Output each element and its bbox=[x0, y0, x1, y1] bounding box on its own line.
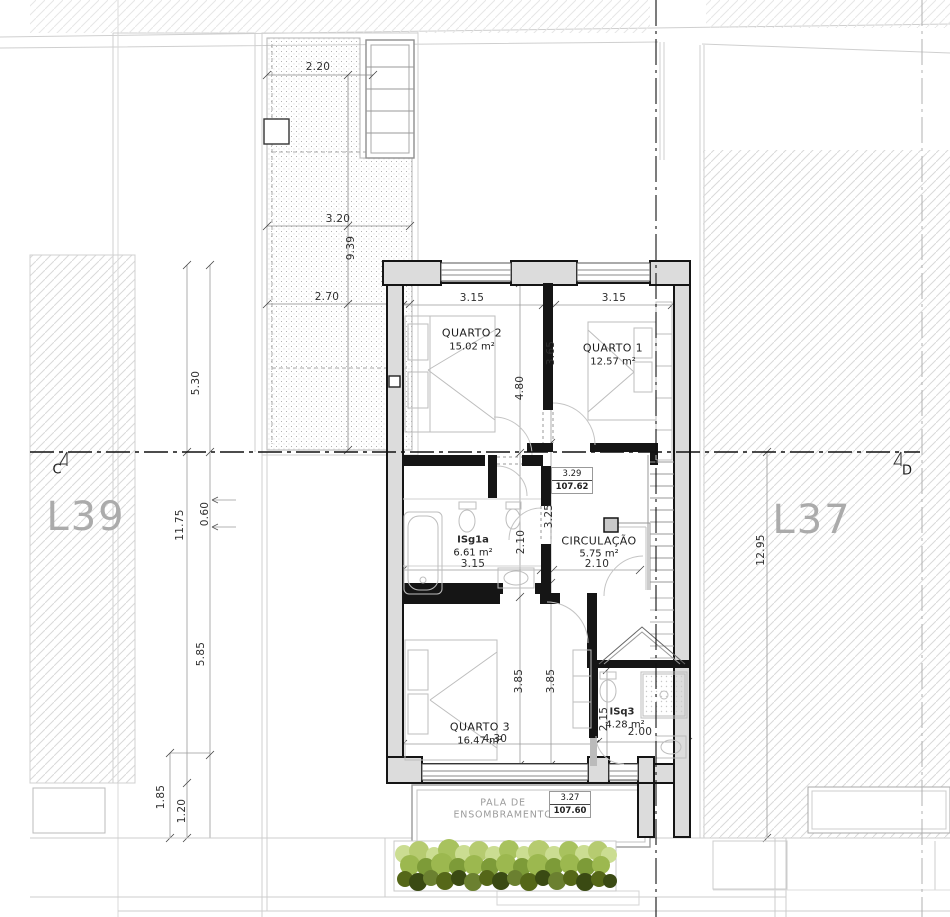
room-name-isq3: ISq3 bbox=[609, 707, 634, 718]
dim-site-lower-width: 2.70 bbox=[315, 291, 340, 303]
floor-plan-linework bbox=[0, 0, 950, 917]
dim-bath3-width: 2.00 bbox=[628, 726, 653, 738]
level-elevation-upper: 107.62 bbox=[552, 480, 592, 493]
dim-q1-depth: 3.65 bbox=[545, 341, 557, 366]
hatch-top-right bbox=[706, 0, 950, 28]
dim-right-depth: 12.95 bbox=[755, 534, 767, 566]
dim-bottom-left-a: 1.85 bbox=[155, 785, 167, 810]
canopy-label-line1: PALA DE bbox=[480, 798, 526, 809]
dim-left-total-depth: 11.75 bbox=[174, 509, 186, 541]
lot-label-left: L39 bbox=[46, 494, 125, 540]
room-name-quarto1: QUARTO 1 bbox=[583, 342, 643, 355]
dim-q3-width: 4.30 bbox=[483, 733, 508, 745]
hatch-lot-right bbox=[703, 150, 950, 838]
room-area-quarto2: 15.02 m² bbox=[449, 342, 495, 353]
staircase bbox=[599, 455, 685, 664]
lot-label-right: L37 bbox=[772, 497, 851, 543]
section-marker-c: C bbox=[52, 463, 61, 478]
dim-circ-width: 2.10 bbox=[585, 558, 610, 570]
dim-q2-depth: 4.80 bbox=[514, 376, 526, 401]
dim-courtyard-depth: 9.39 bbox=[345, 236, 357, 261]
dim-q1-width: 3.15 bbox=[602, 292, 627, 304]
room-area-quarto1: 12.57 m² bbox=[590, 357, 636, 368]
dim-bath3-depth: 2.15 bbox=[598, 707, 610, 732]
dim-bath1-depth: 2.10 bbox=[515, 530, 527, 555]
dim-hall-depth: 3.25 bbox=[543, 504, 555, 529]
level-elevation-canopy: 107.60 bbox=[550, 804, 590, 817]
dim-site-mid-width: 3.20 bbox=[326, 213, 351, 225]
vegetation-hedge bbox=[394, 839, 617, 891]
dim-q2-width: 3.15 bbox=[460, 292, 485, 304]
sliding-door-leaf bbox=[590, 738, 597, 766]
hatch-top-left bbox=[30, 0, 650, 33]
level-marker-canopy: 3.27 107.60 bbox=[549, 791, 591, 818]
level-marker-upper: 3.29 107.62 bbox=[551, 467, 593, 494]
room-name-isg1a: ISg1a bbox=[457, 535, 489, 546]
floor-plan-canvas: L39 L37 C D QUARTO 2 15.02 m² QUARTO 1 1… bbox=[0, 0, 950, 917]
dim-left-lower-depth: 5.85 bbox=[195, 642, 207, 667]
room-name-quarto2: QUARTO 2 bbox=[442, 327, 502, 340]
dim-q3-depth-a: 3.85 bbox=[513, 669, 525, 694]
room-name-quarto3: QUARTO 3 bbox=[450, 721, 510, 734]
structural-column bbox=[604, 518, 618, 532]
dim-site-top-width: 2.20 bbox=[306, 61, 331, 73]
dim-left-offset: 0.60 bbox=[199, 502, 211, 527]
canopy-label-line2: ENSOMBRAMENTO bbox=[453, 810, 552, 821]
exterior-walls bbox=[383, 261, 690, 837]
dim-left-upper-depth: 5.30 bbox=[190, 371, 202, 396]
room-area-isg1a: 6.61 m² bbox=[453, 548, 492, 559]
dim-bath1-width: 3.15 bbox=[461, 558, 486, 570]
dim-bottom-left-b: 1.20 bbox=[176, 799, 188, 824]
room-name-circulacao: CIRCULAÇÃO bbox=[561, 535, 636, 548]
dim-q3-depth-b: 3.85 bbox=[545, 669, 557, 694]
section-marker-d: D bbox=[902, 464, 912, 479]
